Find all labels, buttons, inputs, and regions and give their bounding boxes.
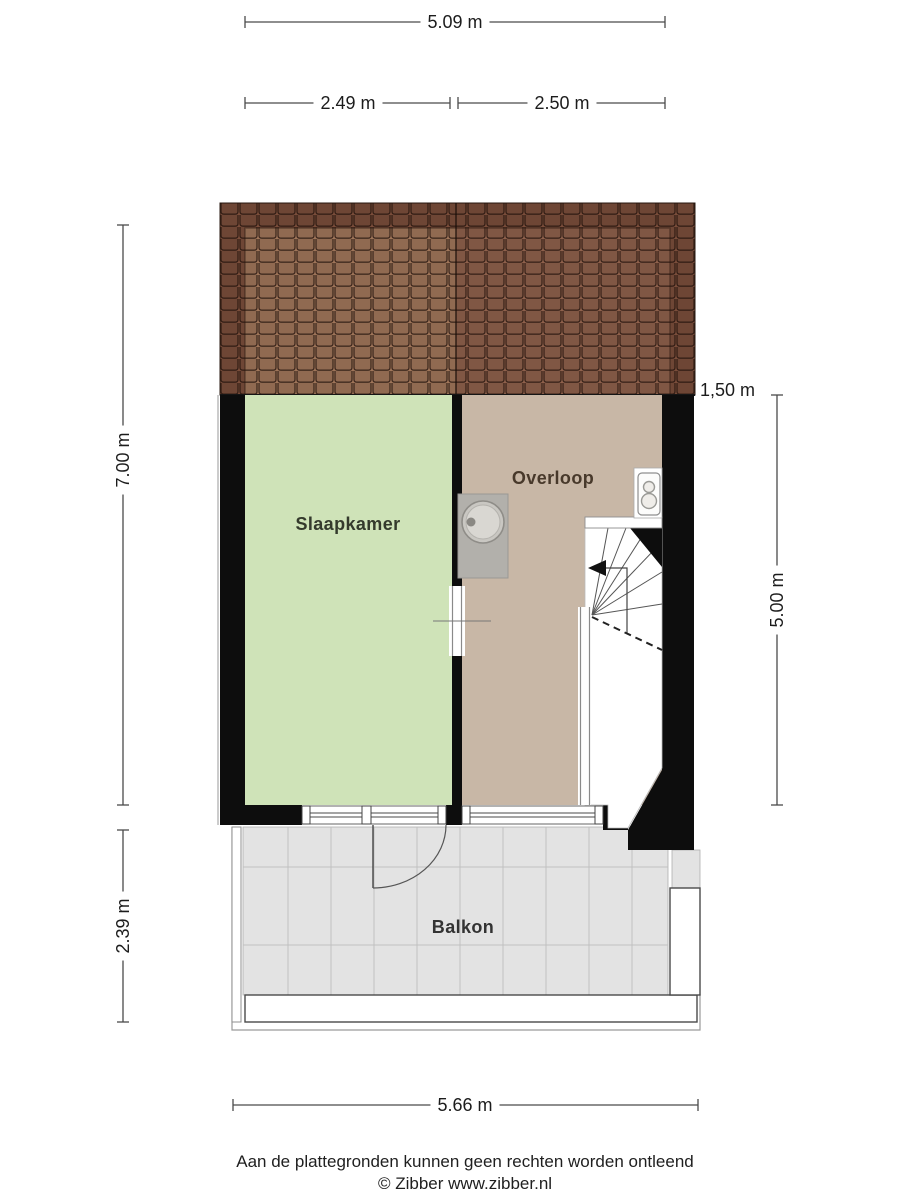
room-slaapkamer-floor: [245, 395, 452, 805]
room-label-overloop: Overloop: [512, 469, 594, 487]
balcony-railing-left: [232, 827, 241, 1022]
room-label-balkon: Balkon: [432, 918, 494, 936]
stair-top-edge: [585, 517, 662, 528]
footer-credit: © Zibber www.zibber.nl: [378, 1174, 552, 1194]
staircase: [578, 517, 662, 828]
room-label-slaapkamer: Slaapkamer: [295, 515, 400, 533]
stair-railing: [578, 607, 591, 805]
sink-icon: [458, 494, 508, 578]
dim-width-right: 2.50 m: [527, 93, 596, 113]
toilet-icon: [634, 468, 662, 518]
dim-stair-zone-depth: 5.00 m: [767, 565, 787, 634]
footer-disclaimer: Aan de plattegronden kunnen geen rechten…: [236, 1152, 693, 1172]
dim-total-width-bottom: 5.66 m: [430, 1095, 499, 1115]
dim-total-width-top: 5.09 m: [420, 12, 489, 32]
roof: [220, 203, 695, 395]
dim-width-left: 2.49 m: [313, 93, 382, 113]
dim-depth-balcony: 2.39 m: [113, 891, 133, 960]
balcony-railing-right: [670, 888, 700, 995]
floor-plan-page: 5.09 m 2.49 m 2.50 m 7.00 m 2.39 m 5.00 …: [0, 0, 900, 1200]
floor-plan-drawing: [0, 0, 900, 1200]
dim-knee-wall-height: 1,50 m: [700, 381, 755, 399]
balcony-railing-bottom: [245, 995, 697, 1022]
dim-depth-main: 7.00 m: [113, 425, 133, 494]
